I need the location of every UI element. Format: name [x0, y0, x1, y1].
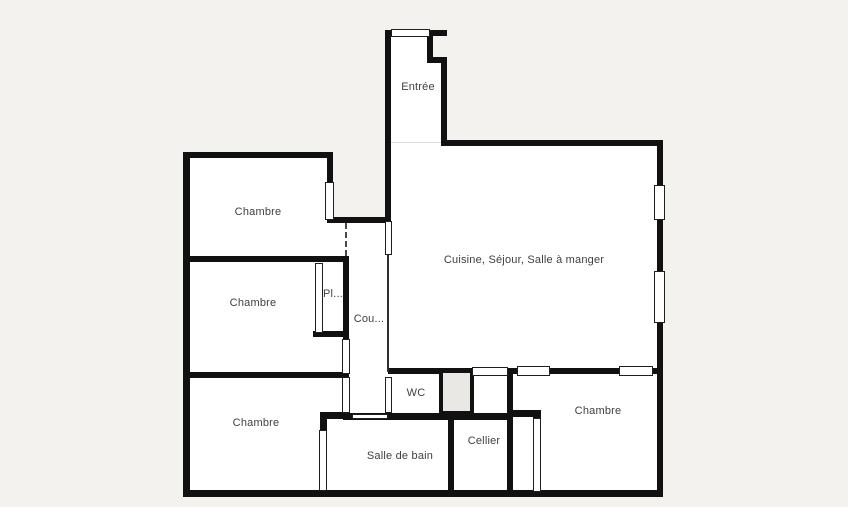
entry-door-marker [391, 29, 430, 37]
threshold-line [390, 142, 441, 143]
room-label-chambre-bottom-left: Chambre [233, 417, 280, 429]
door-marker [342, 339, 350, 374]
wall-segment [183, 256, 348, 262]
room-label-couloir: Cou... [354, 313, 385, 325]
door-marker [342, 377, 350, 413]
wc-door-marker [385, 377, 392, 413]
window-marker [325, 182, 334, 220]
room-label-placard: Pl... [323, 288, 343, 300]
wall-segment [441, 57, 447, 146]
bath-door-marker [352, 414, 388, 419]
wall-segment [183, 152, 190, 497]
room-label-chambre-bottom-right: Chambre [575, 405, 622, 417]
wall-segment [448, 413, 454, 495]
room-label-cellier: Cellier [468, 435, 501, 447]
room-label-chambre-top-left: Chambre [235, 206, 282, 218]
room-label-salle-de-bain: Salle de bain [367, 450, 433, 462]
room-label-chambre-mid-left: Chambre [230, 297, 277, 309]
wall-segment [183, 372, 348, 378]
room-label-entree: Entrée [401, 81, 435, 93]
door-marker [385, 221, 392, 255]
room-label-wc: WC [407, 387, 426, 399]
window-marker [654, 271, 665, 323]
sliding-door-marker [517, 366, 550, 376]
opening-dashed [345, 223, 347, 256]
closet-door-marker [319, 430, 327, 491]
closet-door-marker [315, 263, 323, 333]
wall-segment [183, 152, 333, 158]
wall-segment [385, 30, 391, 223]
wall-segment [441, 140, 663, 146]
room-label-living: Cuisine, Séjour, Salle à manger [444, 254, 604, 266]
duct-shaft [439, 369, 474, 415]
wall-segment [327, 217, 388, 223]
sliding-door-marker [619, 366, 653, 376]
wall-segment [183, 490, 663, 497]
floor-plan: Entrée Chambre Chambre Pl... Cou... Cuis… [0, 0, 848, 507]
cellier-door-marker [472, 367, 508, 376]
partition-line [387, 255, 389, 372]
passage-area [333, 223, 388, 256]
closet-door-marker [533, 418, 541, 492]
window-marker [654, 185, 665, 220]
wall-segment [507, 373, 513, 497]
